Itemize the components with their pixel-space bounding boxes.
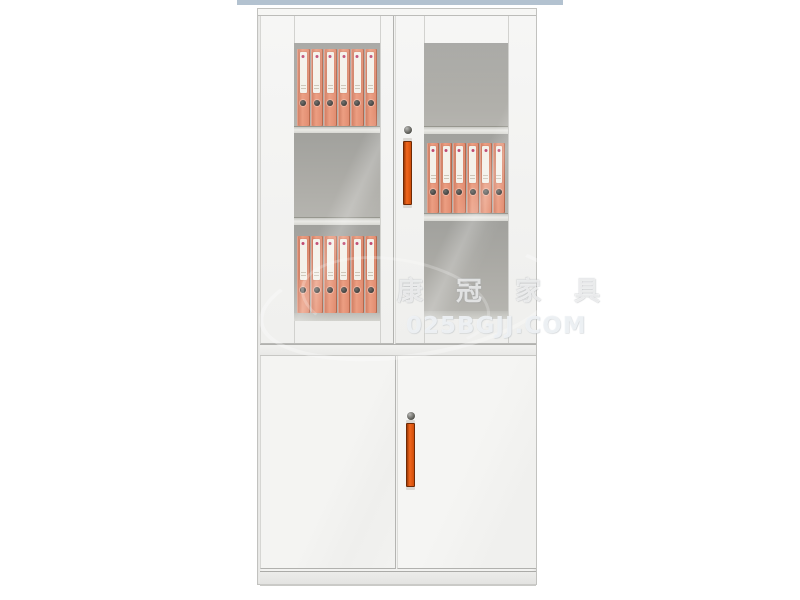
- binder-finger-hole: [368, 100, 374, 106]
- empty-compartment: [424, 43, 508, 126]
- binder-finger-hole: [443, 189, 449, 195]
- binder-label-dot: [356, 55, 359, 58]
- shelf-edge: [424, 213, 508, 221]
- binder-label-lines: [314, 85, 319, 91]
- cabinet-floor-edge: [294, 313, 380, 321]
- binder-label-lines: [341, 272, 346, 278]
- binder-finger-hole: [483, 189, 489, 195]
- binder-label-lines: [341, 85, 346, 91]
- binder-label-dot: [356, 242, 359, 245]
- binder-label-lines: [368, 85, 373, 91]
- binder-label-dot: [315, 55, 318, 58]
- glass-window-right: [424, 43, 508, 319]
- binder-label: [313, 239, 320, 280]
- binder-label: [367, 239, 374, 280]
- binder-label-lines: [457, 175, 462, 181]
- binder: [351, 49, 364, 126]
- binder: [427, 143, 439, 213]
- binder-row: [427, 143, 505, 213]
- binder: [338, 236, 351, 313]
- binder-label: [327, 52, 334, 93]
- binder-finger-hole: [300, 287, 306, 293]
- binder: [365, 49, 378, 126]
- empty-compartment: [294, 133, 380, 217]
- binder-finger-hole: [354, 287, 360, 293]
- binder-label-lines: [328, 272, 333, 278]
- binder-finger-hole: [341, 100, 347, 106]
- binder-label: [313, 52, 320, 93]
- lower-left-door: [260, 356, 396, 569]
- shelf-compartment: [424, 134, 508, 213]
- binder-label: [340, 52, 347, 93]
- binder-finger-hole: [327, 100, 333, 106]
- binder-label: [340, 239, 347, 280]
- binder-label-dot: [497, 149, 500, 152]
- shelf-edge: [294, 126, 380, 133]
- shelf-compartment: [294, 225, 380, 313]
- binder-finger-hole: [496, 189, 502, 195]
- binder-label-lines: [483, 175, 488, 181]
- binder: [467, 143, 479, 213]
- cabinet-top-panel: [258, 9, 536, 16]
- binder: [311, 49, 324, 126]
- cabinet-floor-edge: [424, 311, 508, 319]
- binder-finger-hole: [354, 100, 360, 106]
- binder-label-dot: [432, 149, 435, 152]
- shelf-compartment: [294, 43, 380, 126]
- binder-label-dot: [369, 55, 372, 58]
- binder: [311, 236, 324, 313]
- top-edge-strip: [237, 0, 563, 5]
- binder-label-lines: [431, 175, 436, 181]
- product-photo-canvas: 康 冠 家 具 025BGJJ.COM: [0, 0, 800, 600]
- door-seam: [380, 16, 381, 343]
- binder-label-lines: [470, 175, 475, 181]
- binder-label-lines: [355, 272, 360, 278]
- binder-label: [496, 146, 503, 183]
- filing-cabinet: [257, 8, 537, 585]
- upper-door-handle: [403, 141, 412, 205]
- binder-label-dot: [302, 55, 305, 58]
- binder-row: [297, 236, 377, 313]
- binder-label: [367, 52, 374, 93]
- binder: [297, 236, 310, 313]
- binder-label-dot: [458, 149, 461, 152]
- binder-label: [327, 239, 334, 280]
- binder-label-lines: [301, 85, 306, 91]
- binder-label-lines: [496, 175, 501, 181]
- base-plinth: [260, 571, 536, 586]
- binder-label-dot: [329, 55, 332, 58]
- shelf-edge: [424, 126, 508, 134]
- binder-label-dot: [471, 149, 474, 152]
- binder: [453, 143, 465, 213]
- binder-label: [430, 146, 437, 183]
- lower-right-door: [397, 356, 536, 569]
- binder-label: [300, 239, 307, 280]
- binder-label: [469, 146, 476, 183]
- binder: [480, 143, 492, 213]
- binder-row: [297, 49, 377, 126]
- lower-door-handle: [406, 423, 415, 487]
- binder: [338, 49, 351, 126]
- shelf-edge: [294, 217, 380, 225]
- glass-window-left: [294, 43, 380, 321]
- upper-lock-keyhole-icon: [404, 126, 412, 134]
- lower-lock-keyhole-icon: [407, 412, 415, 420]
- binder-label-dot: [369, 242, 372, 245]
- middle-rail: [260, 344, 536, 356]
- binder-label-dot: [484, 149, 487, 152]
- binder-label-lines: [314, 272, 319, 278]
- binder-finger-hole: [456, 189, 462, 195]
- binder-label: [354, 52, 361, 93]
- empty-compartment: [424, 221, 508, 311]
- upper-right-glass-door: [395, 16, 536, 344]
- binder-finger-hole: [314, 287, 320, 293]
- binder-label-dot: [315, 242, 318, 245]
- binder-label-lines: [328, 85, 333, 91]
- binder-label: [354, 239, 361, 280]
- binder-label: [482, 146, 489, 183]
- binder: [324, 236, 337, 313]
- binder-label-lines: [444, 175, 449, 181]
- binder-label-lines: [368, 272, 373, 278]
- door-seam: [508, 16, 509, 343]
- binder: [440, 143, 452, 213]
- binder-label-dot: [342, 55, 345, 58]
- binder: [365, 236, 378, 313]
- binder: [351, 236, 364, 313]
- binder-label-dot: [342, 242, 345, 245]
- binder-label: [456, 146, 463, 183]
- binder-label-dot: [302, 242, 305, 245]
- binder-finger-hole: [314, 100, 320, 106]
- binder-label-lines: [355, 85, 360, 91]
- binder-finger-hole: [300, 100, 306, 106]
- binder-finger-hole: [327, 287, 333, 293]
- upper-left-glass-door: [260, 16, 394, 344]
- binder-label: [300, 52, 307, 93]
- binder-label-dot: [445, 149, 448, 152]
- binder-finger-hole: [341, 287, 347, 293]
- binder-label-lines: [301, 272, 306, 278]
- binder-label-dot: [329, 242, 332, 245]
- binder-finger-hole: [470, 189, 476, 195]
- binder: [493, 143, 505, 213]
- binder-label: [443, 146, 450, 183]
- binder: [297, 49, 310, 126]
- binder-finger-hole: [368, 287, 374, 293]
- binder-finger-hole: [430, 189, 436, 195]
- binder: [324, 49, 337, 126]
